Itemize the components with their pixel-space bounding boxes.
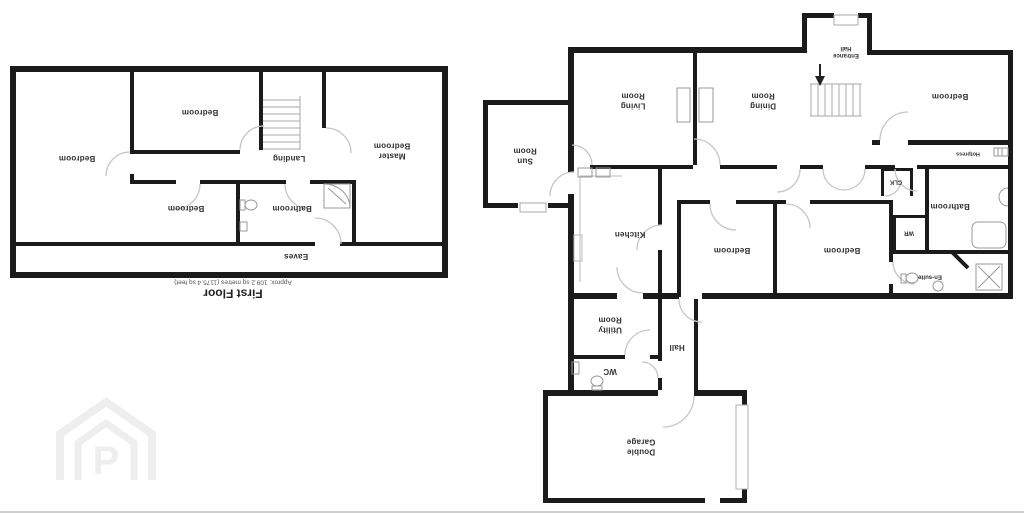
room-label-eaves: Eaves	[284, 251, 308, 261]
room-label-bathroom-gf: Bathroom	[930, 201, 969, 211]
stairs-direction-arrow-icon	[815, 64, 825, 86]
room-label-kitchen: Kitchen	[615, 229, 646, 239]
room-label-bedroom-top-right: Bedroom	[932, 91, 969, 101]
room-label-entrance-hall: Entrance Hall	[833, 44, 859, 58]
plan-area-text: Approx. 109.2 sq metres (1175.4 sq feet)	[150, 277, 316, 285]
ground-floor-door-arcs	[550, 112, 917, 427]
room-label-wc: WC	[603, 366, 617, 376]
room-label-double-garage: Double Garage	[627, 437, 656, 456]
room-label-hotpress: Hotpress	[956, 150, 980, 157]
room-label-landing: Landing	[273, 153, 306, 163]
room-label-sun-room: Sun Room	[513, 146, 536, 165]
garage-door	[736, 405, 748, 489]
room-label-bedroom-right: Bedroom	[824, 245, 861, 255]
first-floor-door-arcs	[106, 126, 351, 244]
room-label-bedroom-center: Bedroom	[714, 245, 751, 255]
room-label-wr: WR	[904, 228, 914, 235]
first-floor-walls	[10, 66, 448, 278]
scanned-floorplan-page: P	[0, 0, 1024, 513]
first-floor-linework	[10, 66, 448, 278]
room-label-utility-room: Utility Room	[598, 315, 622, 334]
room-label-hall: Hall	[669, 342, 684, 352]
room-label-bedroom-left: Bedroom	[59, 153, 96, 163]
watermark-letter: P	[93, 439, 120, 482]
first-floor-caption: First Floor Approx. 109.2 sq metres (117…	[150, 277, 316, 300]
ground-floor-linework	[480, 10, 1016, 510]
entrance-stairs	[810, 84, 862, 116]
ground-floor-fixtures	[572, 88, 1008, 390]
first-floor-stairs	[263, 96, 300, 150]
ground-floor-plan: Sun Room Living Room Dining Room Entranc…	[480, 10, 1016, 510]
room-label-dining-room: Dining Room	[750, 91, 776, 110]
house-logo-watermark-icon: P	[48, 394, 164, 482]
room-label-bathroom-ff: Bathroom	[272, 203, 311, 213]
first-floor-plan: Bedroom Bedroom Landing Master Bedroom B…	[10, 66, 448, 278]
room-label-bedroom-top: Bedroom	[182, 107, 219, 117]
room-label-bedroom-bottom: Bedroom	[168, 203, 205, 213]
room-label-master-bedroom: Master Bedroom	[374, 141, 411, 160]
plan-title: First Floor	[150, 285, 316, 300]
room-label-clk: CLK	[890, 177, 902, 184]
room-label-living-room: Living Room	[621, 91, 646, 110]
chamfer-wall	[952, 252, 968, 268]
room-label-en-suite: En-suite	[918, 272, 942, 279]
